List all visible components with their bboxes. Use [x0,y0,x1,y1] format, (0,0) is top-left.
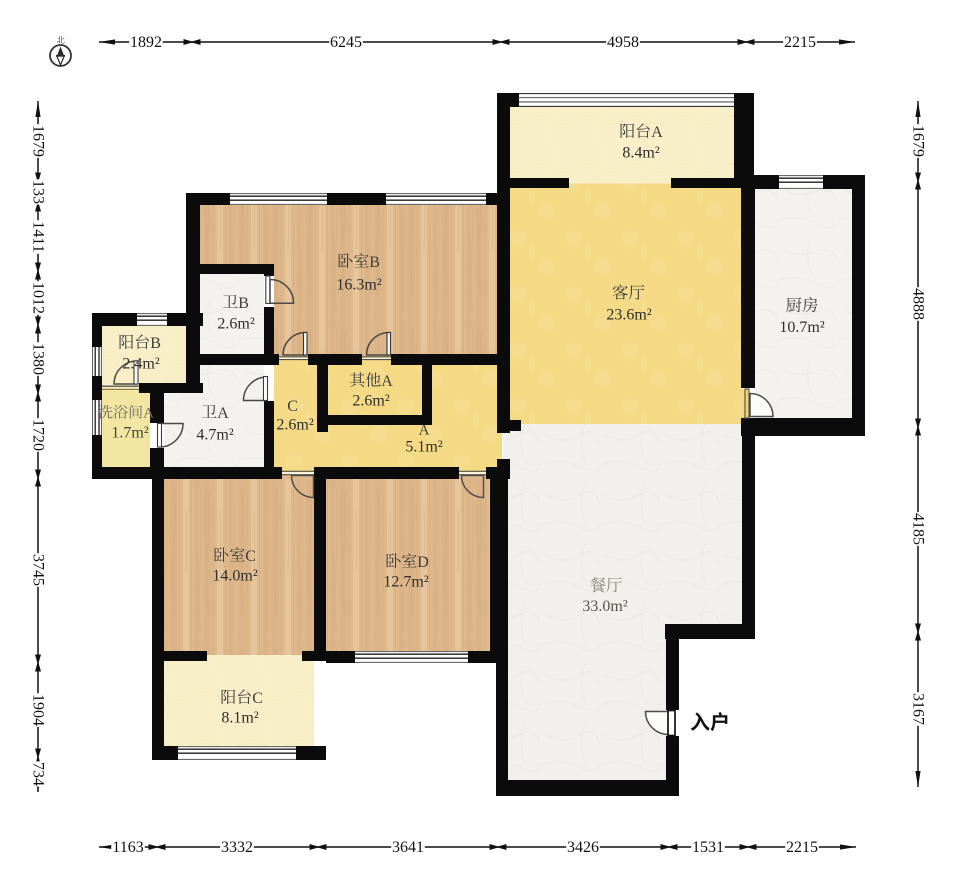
svg-text:2.4m²: 2.4m² [122,355,159,372]
svg-text:1904: 1904 [30,694,47,726]
svg-text:A: A [381,373,393,390]
svg-text:2215: 2215 [784,34,816,51]
svg-text:734: 734 [30,762,47,786]
svg-text:1531: 1531 [692,839,724,856]
svg-text:A: A [419,422,430,438]
svg-text:B: B [238,295,249,312]
svg-text:3332: 3332 [221,839,253,856]
svg-text:2.6m²: 2.6m² [352,392,389,409]
svg-text:5.1m²: 5.1m² [405,438,442,455]
svg-text:2.6m²: 2.6m² [217,315,254,332]
svg-text:B: B [369,254,380,271]
svg-text:4.7m²: 4.7m² [196,426,233,443]
svg-text:133: 133 [30,180,47,204]
svg-text:C: C [287,398,298,415]
svg-text:1892: 1892 [130,34,162,51]
svg-text:33.0m²: 33.0m² [582,598,627,615]
svg-text:D: D [417,554,429,571]
svg-text:6245: 6245 [330,34,362,51]
svg-text:2.6m²: 2.6m² [276,416,313,433]
svg-text:1679: 1679 [910,125,927,157]
svg-text:B: B [150,335,161,352]
svg-text:4958: 4958 [607,34,639,51]
svg-text:8.1m²: 8.1m² [221,709,258,726]
svg-text:1411: 1411 [30,221,47,252]
svg-text:2215: 2215 [786,839,818,856]
svg-text:C: C [245,548,256,565]
svg-text:14.0m²: 14.0m² [212,567,257,584]
svg-text:1.7m²: 1.7m² [111,424,148,441]
svg-text:10.7m²: 10.7m² [779,319,824,336]
svg-text:3745: 3745 [30,554,47,586]
svg-text:A: A [217,405,229,422]
svg-text:3426: 3426 [567,839,599,856]
svg-text:A: A [143,405,154,421]
svg-text:16.3m²: 16.3m² [336,276,381,293]
svg-text:C: C [252,690,263,707]
svg-text:12.7m²: 12.7m² [383,573,428,590]
svg-text:1163: 1163 [112,839,143,856]
svg-text:3167: 3167 [910,693,927,725]
svg-text:1679: 1679 [30,125,47,157]
svg-text:A: A [651,124,663,141]
svg-text:4185: 4185 [910,513,927,545]
svg-text:1380: 1380 [30,343,47,375]
svg-text:4888: 4888 [910,288,927,320]
svg-text:1720: 1720 [30,419,47,451]
svg-text:3641: 3641 [392,839,424,856]
svg-text:8.4m²: 8.4m² [622,144,659,161]
svg-text:23.6m²: 23.6m² [606,306,651,323]
svg-text:1012: 1012 [30,282,47,314]
